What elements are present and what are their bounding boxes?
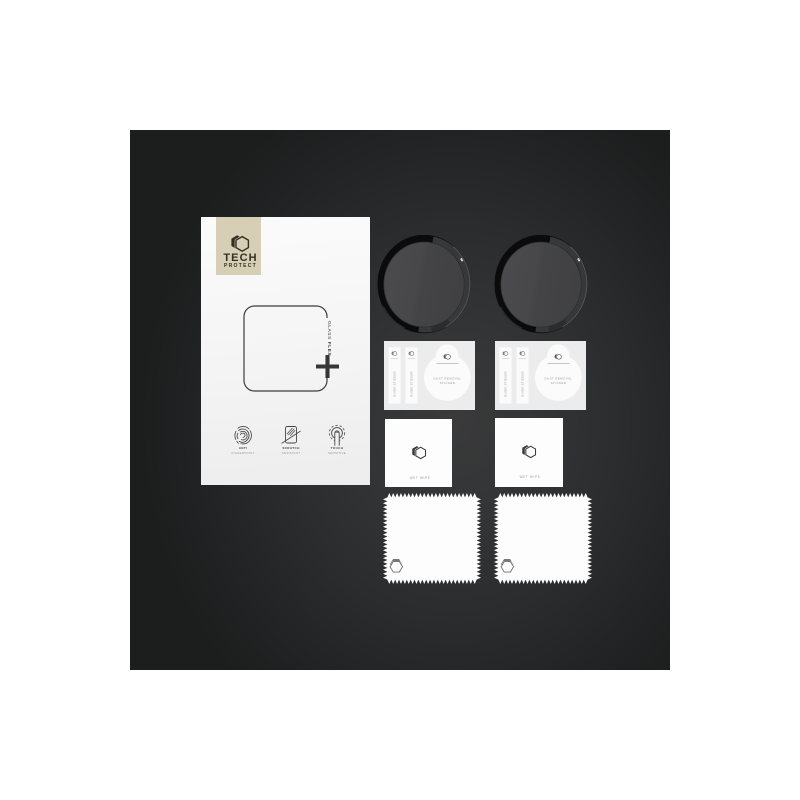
svg-text:STICKER: STICKER xyxy=(551,381,567,385)
svg-text:WET WIPE: WET WIPE xyxy=(520,475,541,479)
svg-text:WET WIPE: WET WIPE xyxy=(410,476,431,480)
svg-text:GUIDE STICKER: GUIDE STICKER xyxy=(410,371,414,397)
svg-text:GUIDE STICKER: GUIDE STICKER xyxy=(521,371,525,397)
svg-text:GUIDE STICKER: GUIDE STICKER xyxy=(504,371,508,397)
svg-text:GUIDE STICKER: GUIDE STICKER xyxy=(393,371,397,397)
svg-text:STICKER: STICKER xyxy=(440,381,456,385)
